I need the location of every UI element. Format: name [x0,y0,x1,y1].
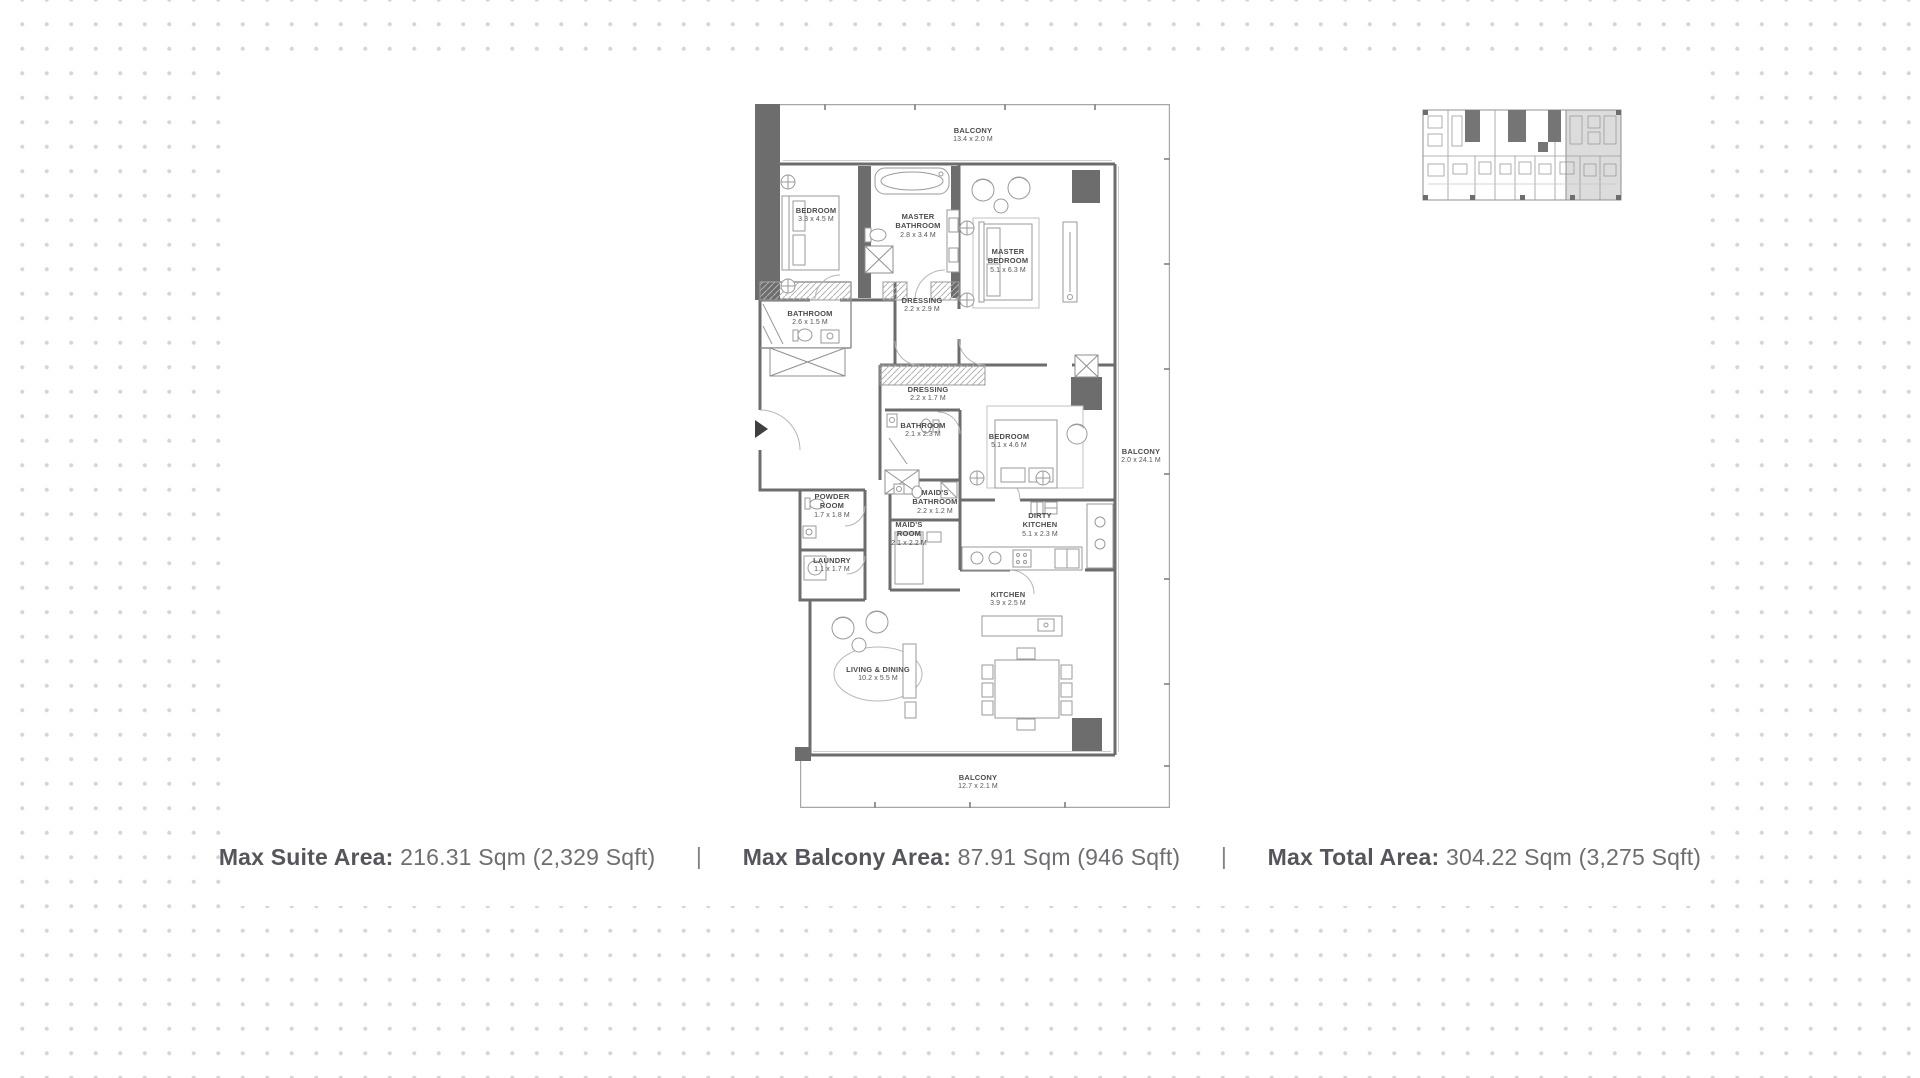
area-summary: Max Suite Area: 216.31 Sqm (2,329 Sqft) … [0,844,1920,871]
room-label-balcony-top: BALCONY 13.4 x 2.0 M [938,126,1008,144]
room-label-balcony-bottom: BALCONY 12.7 x 2.1 M [943,773,1013,791]
floor-plan: BALCONY 13.4 x 2.0 M BEDROOM 3.3 x 4.5 M… [755,104,1170,808]
room-label-bathroom-2: BATHROOM 2.1 x 2.3 M [893,421,953,439]
room-label-powder-room: POWDER ROOM 1.7 x 1.8 M [810,492,854,520]
key-plan-drawing [1420,104,1626,206]
key-plan-unit-highlight [1566,110,1621,200]
furniture [763,168,1113,730]
room-label-dirty-kitchen: DIRTY KITCHEN 5.1 x 2.3 M [1018,511,1062,539]
balcony-area-item: Max Balcony Area: 87.91 Sqm (946 Sqft) [743,844,1181,870]
room-label-master-bathroom: MASTER BATHROOM 2.8 x 3.4 M [891,212,945,240]
key-plan [1420,104,1626,206]
suite-area-value: 216.31 Sqm (2,329 Sqft) [400,844,655,870]
room-label-dressing-1: DRESSING 2.2 x 2.9 M [892,296,952,314]
suite-area-item: Max Suite Area: 216.31 Sqm (2,329 Sqft) [219,844,656,870]
room-label-balcony-right: BALCONY 2.0 x 24.1 M [1115,447,1167,465]
room-label-bathroom-1: BATHROOM 2.6 x 1.5 M [780,309,840,327]
separator: | [1221,843,1227,870]
total-area-item: Max Total Area: 304.22 Sqm (3,275 Sqft) [1268,844,1702,870]
total-area-value: 304.22 Sqm (3,275 Sqft) [1446,844,1701,870]
separator: | [696,843,702,870]
balcony-area-value: 87.91 Sqm (946 Sqft) [958,844,1181,870]
balcony-area-label: Max Balcony Area: [743,844,951,870]
room-label-living-dining: LIVING & DINING 10.2 x 5.5 M [832,665,924,683]
room-label-kitchen: KITCHEN 3.9 x 2.5 M [978,590,1038,608]
entrance-marker [755,420,768,438]
room-label-laundry: LAUNDRY 1.1 x 1.7 M [802,556,862,574]
room-label-dressing-2: DRESSING 2.2 x 1.7 M [898,385,958,403]
room-label-maids-bathroom: MAID'S BATHROOM 2.2 x 1.2 M [909,488,961,516]
room-label-master-bedroom: MASTER BEDROOM 5.1 x 6.3 M [981,247,1035,275]
suite-area-label: Max Suite Area: [219,844,394,870]
total-area-label: Max Total Area: [1268,844,1440,870]
room-label-bedroom-1: BEDROOM 3.3 x 4.5 M [786,206,846,224]
room-label-bedroom-2: BEDROOM 5.1 x 4.6 M [979,432,1039,450]
room-label-maids-room: MAID'S ROOM 2.1 x 2.2 M [889,520,929,548]
